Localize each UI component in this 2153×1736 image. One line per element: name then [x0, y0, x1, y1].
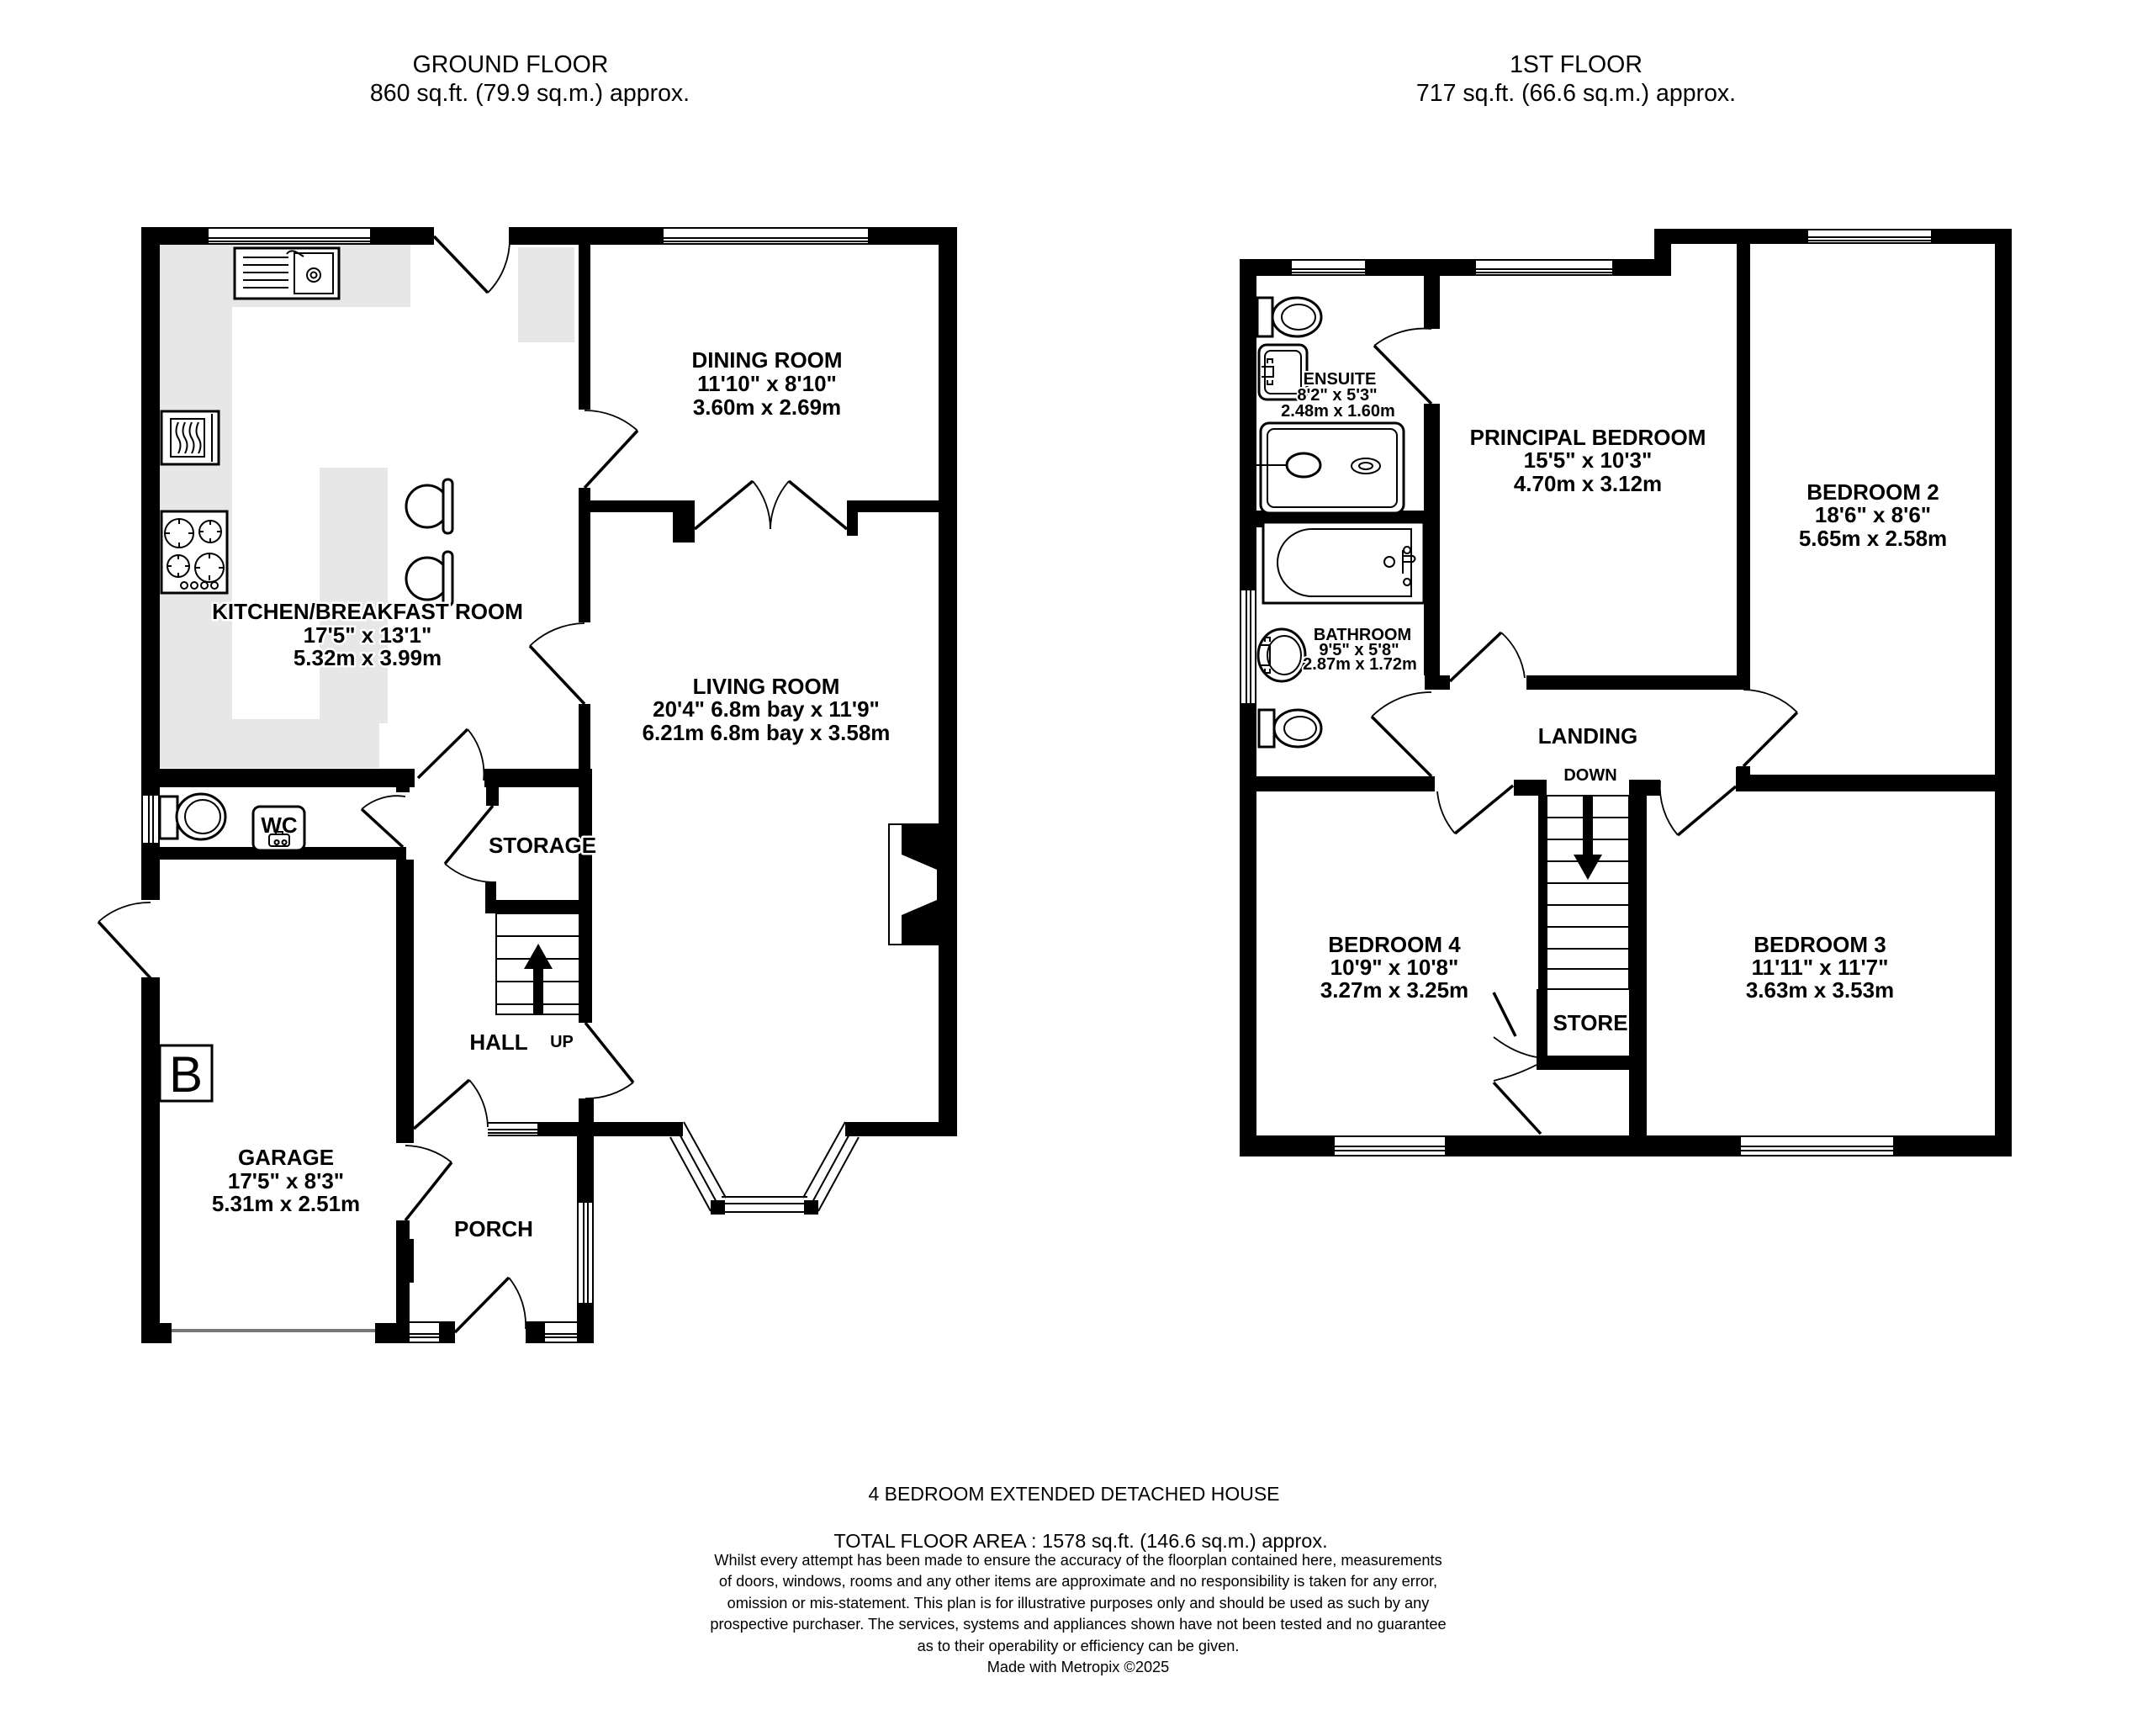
svg-text:2.87m x 1.72m: 2.87m x 1.72m	[1303, 655, 1417, 674]
svg-text:STORAGE: STORAGE	[489, 833, 596, 858]
svg-text:6.21m 6.8m bay x 3.58m: 6.21m 6.8m bay x 3.58m	[643, 720, 891, 745]
svg-text:860 sq.ft. (79.9 sq.m.) approx: 860 sq.ft. (79.9 sq.m.) approx.	[370, 80, 690, 107]
svg-text:3.60m x 2.69m: 3.60m x 2.69m	[693, 394, 841, 420]
svg-text:BEDROOM 4: BEDROOM 4	[1328, 932, 1461, 957]
svg-text:Whilst every attempt has been: Whilst every attempt has been made to en…	[714, 1552, 1442, 1569]
svg-text:17'5" x 8'3": 17'5" x 8'3"	[228, 1168, 344, 1193]
svg-text:LANDING: LANDING	[1538, 723, 1637, 749]
svg-text:20'4" 6.8m bay x 11'9": 20'4" 6.8m bay x 11'9"	[653, 696, 880, 722]
svg-text:4 BEDROOM EXTENDED DETACHED HO: 4 BEDROOM EXTENDED DETACHED HOUSE	[868, 1483, 1279, 1505]
svg-text:11'10" x 8'10": 11'10" x 8'10"	[697, 371, 837, 396]
svg-text:3.27m x 3.25m: 3.27m x 3.25m	[1320, 977, 1468, 1003]
svg-text:as to their operability or eff: as to their operability or efficiency ca…	[918, 1638, 1240, 1654]
svg-text:BEDROOM 3: BEDROOM 3	[1754, 932, 1886, 957]
svg-text:B: B	[169, 1046, 203, 1103]
svg-text:PRINCIPAL BEDROOM: PRINCIPAL BEDROOM	[1470, 425, 1706, 450]
svg-text:1ST FLOOR: 1ST FLOOR	[1510, 51, 1643, 78]
svg-text:DINING ROOM: DINING ROOM	[691, 347, 842, 373]
svg-text:2.48m x 1.60m: 2.48m x 1.60m	[1281, 402, 1395, 421]
svg-text:15'5" x 10'3": 15'5" x 10'3"	[1524, 447, 1653, 473]
svg-text:of doors, windows, rooms and a: of doors, windows, rooms and any other i…	[719, 1573, 1437, 1590]
svg-text:Made with Metropix ©2025: Made with Metropix ©2025	[987, 1659, 1170, 1675]
svg-text:717 sq.ft. (66.6 sq.m.) approx: 717 sq.ft. (66.6 sq.m.) approx.	[1416, 80, 1736, 107]
svg-text:GROUND FLOOR: GROUND FLOOR	[413, 51, 609, 78]
svg-text:BEDROOM 2: BEDROOM 2	[1807, 479, 1939, 505]
svg-text:PORCH: PORCH	[454, 1216, 533, 1241]
svg-text:5.65m x 2.58m: 5.65m x 2.58m	[1799, 526, 1947, 551]
svg-text:LIVING ROOM: LIVING ROOM	[693, 674, 840, 699]
svg-text:GARAGE: GARAGE	[238, 1145, 334, 1170]
svg-text:DOWN: DOWN	[1563, 766, 1616, 785]
svg-text:17'5" x 13'1": 17'5" x 13'1"	[304, 622, 432, 648]
svg-text:KITCHEN/BREAKFAST ROOM: KITCHEN/BREAKFAST ROOM	[212, 599, 523, 624]
svg-text:18'6" x 8'6": 18'6" x 8'6"	[1815, 502, 1931, 527]
svg-text:5.31m x 2.51m: 5.31m x 2.51m	[212, 1191, 360, 1216]
svg-text:11'11" x 11'7": 11'11" x 11'7"	[1752, 955, 1889, 980]
svg-text:HALL: HALL	[469, 1029, 527, 1055]
svg-text:3.63m x 3.53m: 3.63m x 3.53m	[1746, 977, 1894, 1003]
svg-text:UP: UP	[550, 1033, 574, 1051]
svg-text:10'9" x 10'8": 10'9" x 10'8"	[1330, 955, 1459, 980]
svg-text:prospective purchaser. The ser: prospective purchaser. The services, sys…	[710, 1616, 1446, 1633]
svg-text:4.70m x 3.12m: 4.70m x 3.12m	[1514, 471, 1662, 496]
svg-text:STORE: STORE	[1553, 1010, 1627, 1035]
svg-text:omission or mis-statement. Thi: omission or mis-statement. This plan is …	[727, 1595, 1431, 1612]
svg-text:TOTAL FLOOR AREA : 1578 sq.ft.: TOTAL FLOOR AREA : 1578 sq.ft. (146.6 sq…	[833, 1530, 1327, 1552]
svg-text:5.32m x 3.99m: 5.32m x 3.99m	[294, 645, 442, 670]
